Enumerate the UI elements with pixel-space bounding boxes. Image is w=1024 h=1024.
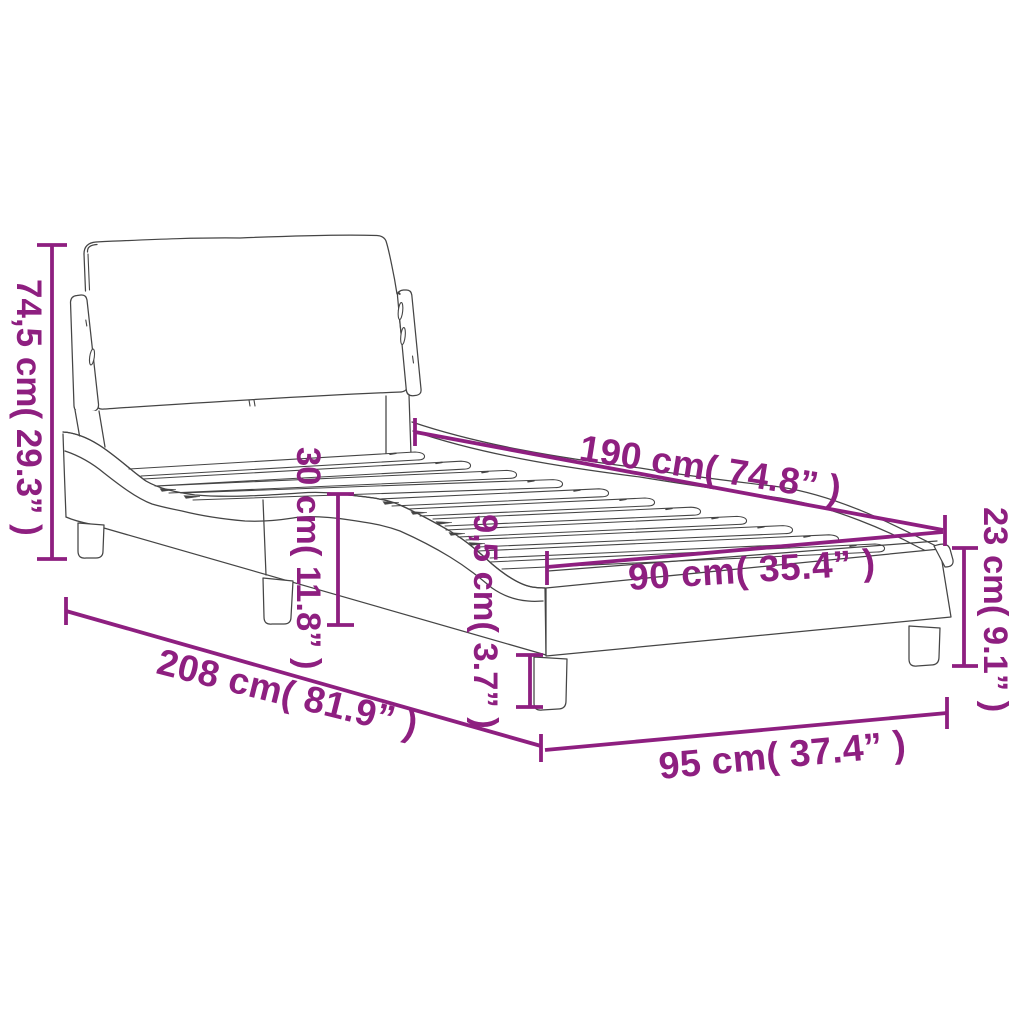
svg-text:23 cm( 9.1” ): 23 cm( 9.1” ) bbox=[976, 507, 1014, 712]
svg-text:9,5 cm( 3.7” ): 9,5 cm( 3.7” ) bbox=[466, 514, 504, 729]
svg-text:74,5 cm( 29.3” ): 74,5 cm( 29.3” ) bbox=[9, 279, 48, 536]
svg-text:30 cm( 11.8” ): 30 cm( 11.8” ) bbox=[289, 447, 327, 669]
